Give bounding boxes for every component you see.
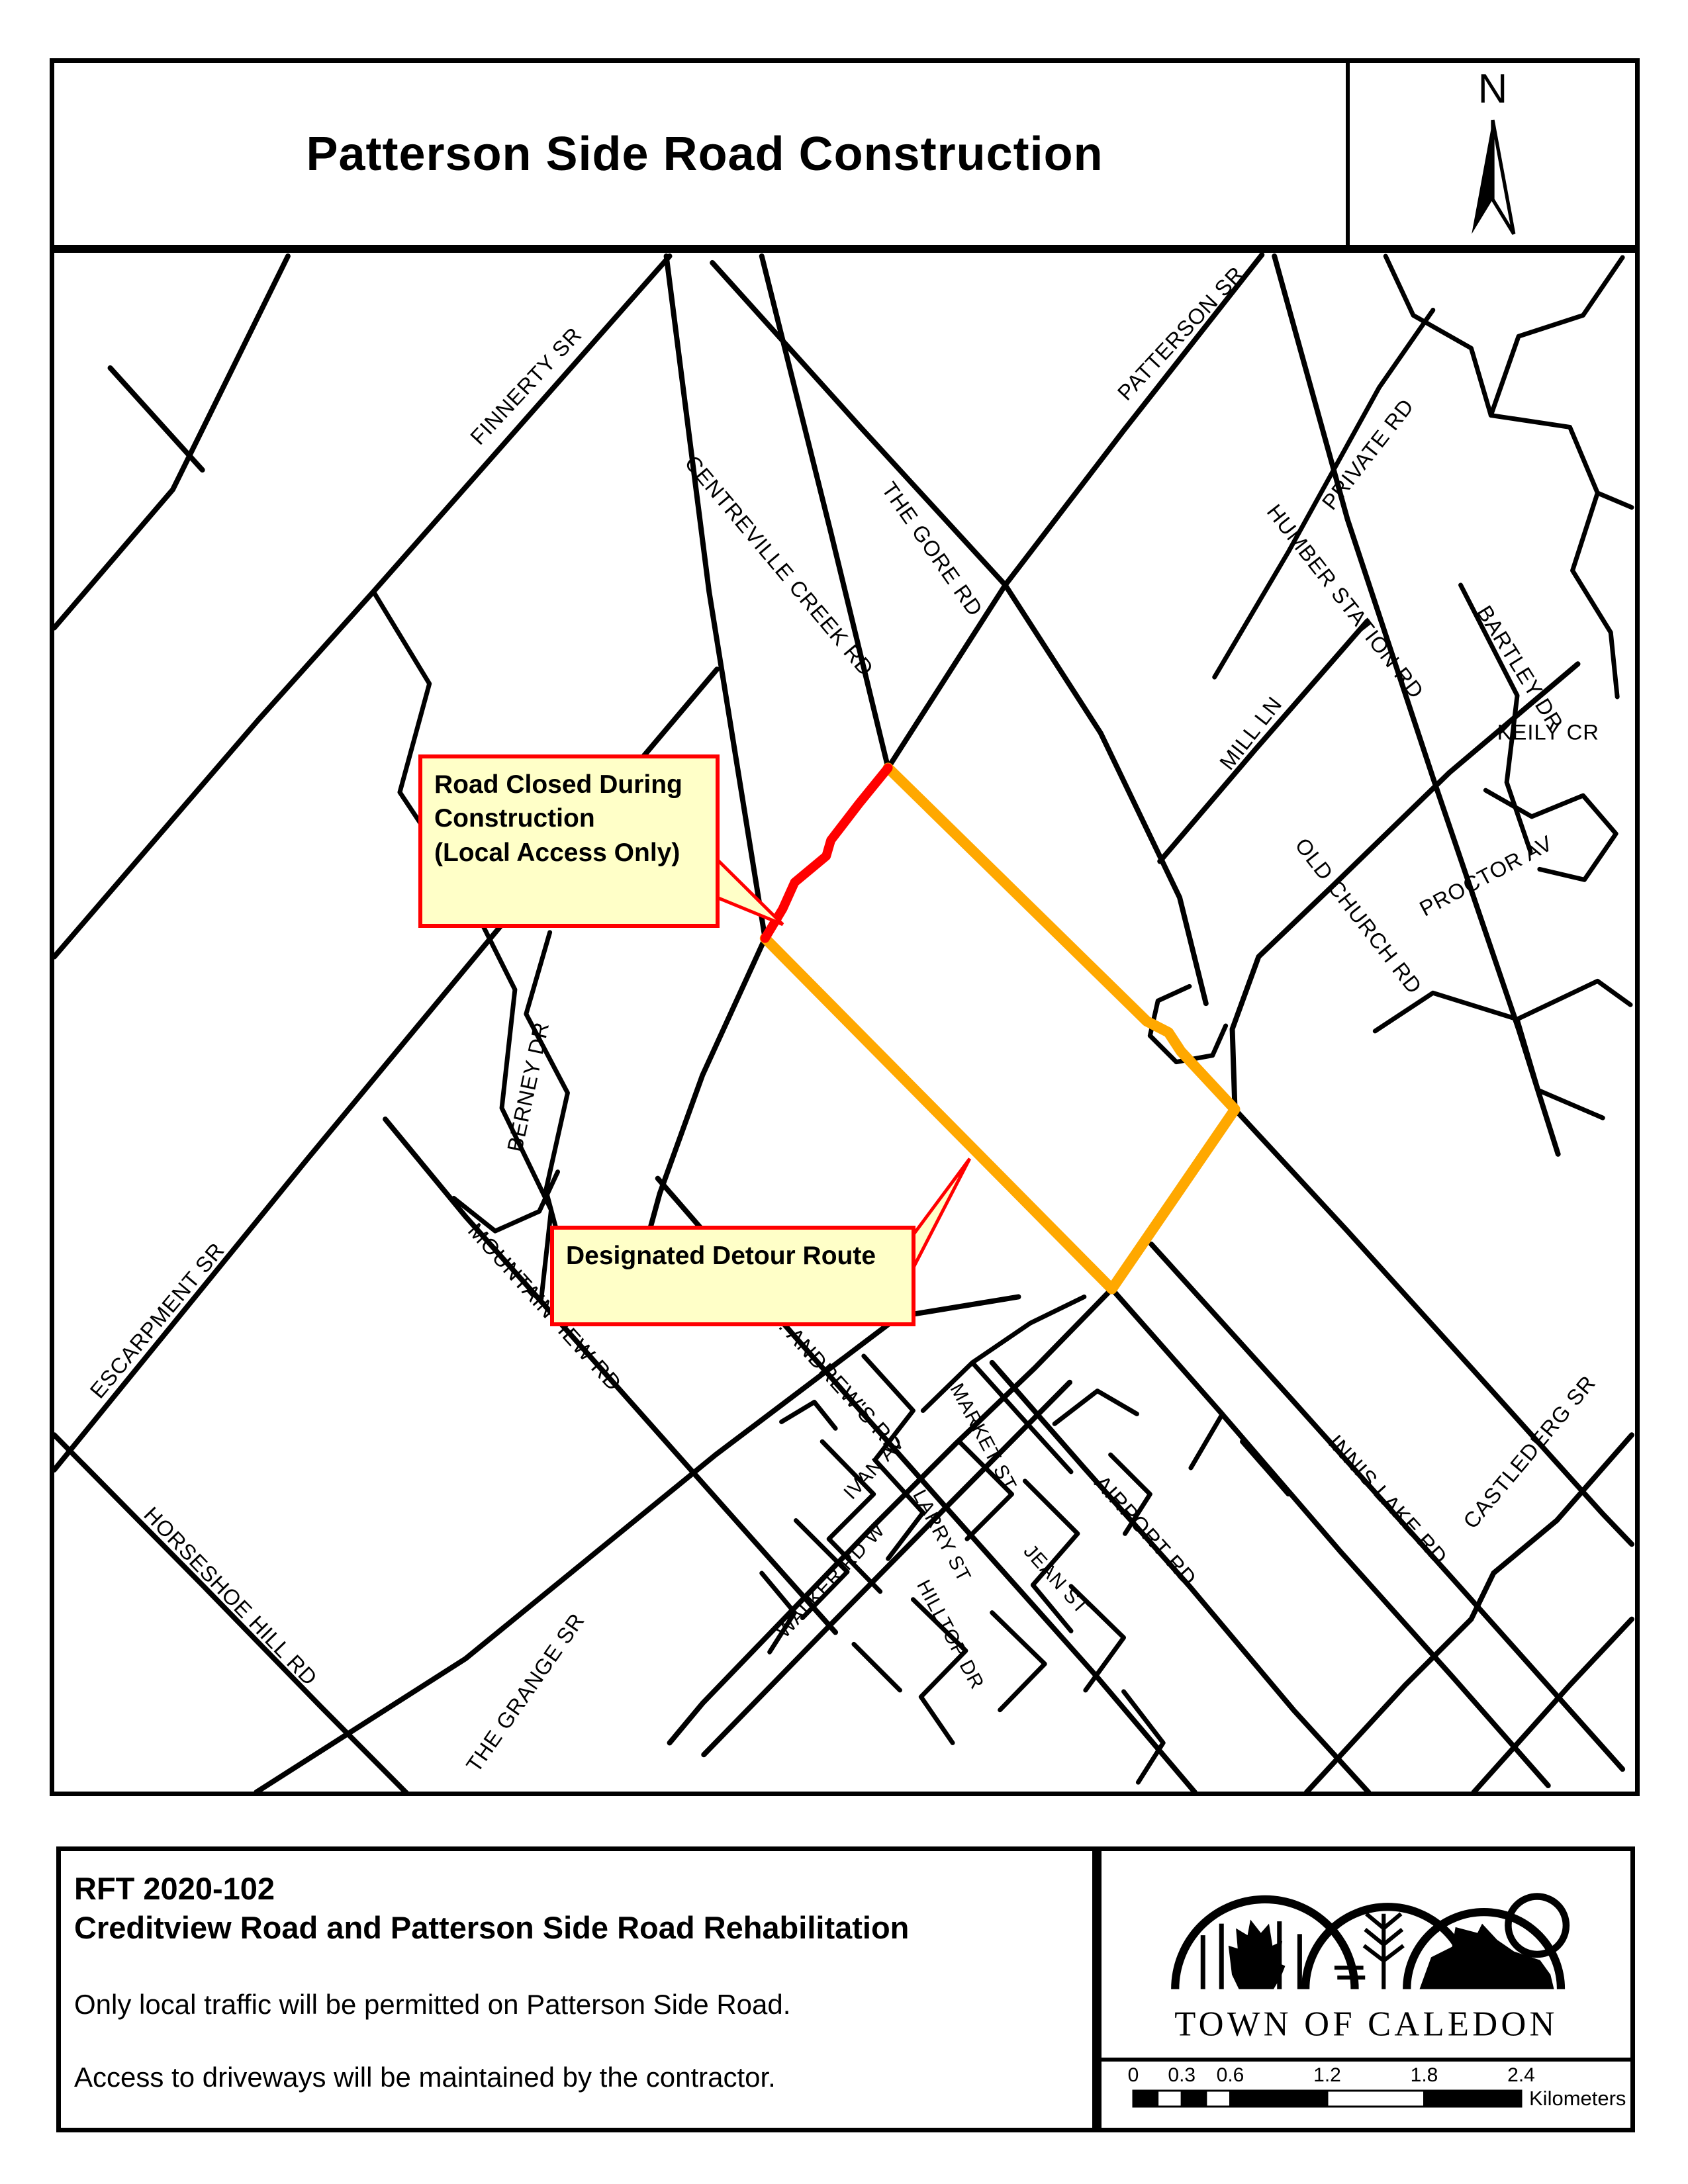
scale-bar-segment xyxy=(1231,2091,1328,2107)
footer-logo-box: TOWN OF CALEDON 00.30.61.21.82.4Kilomete… xyxy=(1097,1846,1635,2132)
page: { "title": "Patterson Side Road Construc… xyxy=(0,0,1688,2184)
north-label: N xyxy=(1477,66,1507,112)
road-closed-callout-text-line: Construction xyxy=(434,801,704,835)
town-of-caledon-logo: TOWN OF CALEDON xyxy=(1102,1851,1630,2062)
scale-bar-segment xyxy=(1182,2091,1206,2107)
road-label-market-st: MARKET ST xyxy=(946,1380,1021,1495)
road-old-church-rd-town xyxy=(670,1289,1112,1743)
north-arrow-right-half xyxy=(1493,120,1514,234)
closed-road-highlight xyxy=(765,768,888,938)
scale-tick-label: 2.4 xyxy=(1507,2064,1535,2086)
map-area: FINNERTY SRCENTREVILLE CREEK RDTHE GORE … xyxy=(50,248,1640,1796)
road-label-proctor-av: PROCTOR AV xyxy=(1415,831,1556,921)
road-town-11 xyxy=(782,1402,836,1429)
road-town-9 xyxy=(992,1613,1045,1710)
road-closed-callout-leader xyxy=(712,855,782,925)
road-the-grange-sr xyxy=(256,1297,1018,1792)
road-the-gore-rd-north xyxy=(762,256,888,768)
road-town-13 xyxy=(854,1644,900,1690)
road-corner-br-road xyxy=(1474,1619,1632,1792)
road-wiggle-tr-3 xyxy=(1573,493,1618,697)
footer-note-2: Access to driveways will be maintained b… xyxy=(74,2062,1079,2093)
road-label-escarpment-sr: ESCARPMENT SR xyxy=(85,1238,229,1403)
north-arrow-cell: N xyxy=(1346,63,1635,245)
header-bar: Patterson Side Road Construction N xyxy=(50,58,1640,250)
scale-tick-label: 0.6 xyxy=(1217,2064,1244,2086)
road-town-17 xyxy=(1242,1441,1288,1494)
scale-bar-segment xyxy=(1158,2091,1182,2107)
road-label-humber-station-rd: HUMBER STATION RD xyxy=(1262,500,1429,704)
north-arrow-icon: N xyxy=(1443,66,1542,242)
road-label-patterson-sr: PATTERSON SR xyxy=(1113,261,1249,405)
road-label-innis-lake-rd: INNIS LAKE RD xyxy=(1323,1430,1452,1569)
detour-callout: Designated Detour Route xyxy=(550,1226,915,1326)
scale-tick-label: 0 xyxy=(1128,2064,1139,2086)
project-title: Creditview Road and Patterson Side Road … xyxy=(74,1909,1079,1948)
scale-tick-label: 0.3 xyxy=(1168,2064,1196,2086)
road-town-15 xyxy=(1124,1692,1164,1782)
road-label-jean-st: JEAN ST xyxy=(1019,1540,1093,1618)
road-mill-ln xyxy=(1160,621,1367,862)
road-label-the-grange-sr: THE GRANGE SR xyxy=(461,1608,589,1776)
scale-bar-segment xyxy=(1133,2091,1158,2107)
road-label-centreville-creek-rd: CENTREVILLE CREEK RD xyxy=(680,451,878,681)
scale-tick-label: 1.8 xyxy=(1411,2064,1438,2086)
road-label-finnerty-sr: FINNERTY SR xyxy=(465,322,586,449)
scale-tick-label: 1.2 xyxy=(1313,2064,1341,2086)
road-corner-tl-road xyxy=(54,256,288,628)
road-closed-callout: Road Closed DuringConstruction(Local Acc… xyxy=(418,754,720,928)
detour-route-highlight xyxy=(765,768,1235,1289)
road-wiggle-tr-2 xyxy=(1491,257,1622,416)
road-town-16 xyxy=(1176,1363,1223,1468)
footer-info-box: RFT 2020-102 Creditview Road and Patters… xyxy=(56,1846,1097,2132)
road-town-18 xyxy=(1055,1391,1137,1424)
road-label-keily-cr: KEILY CR xyxy=(1497,720,1599,745)
footer-note-1: Only local traffic will be permitted on … xyxy=(74,1989,1079,2021)
detour-callout-leader xyxy=(909,1159,969,1276)
road-castlederg-sr xyxy=(1307,1435,1632,1792)
road-proctor-wiggle-2 xyxy=(1517,1019,1603,1118)
detour-callout-text-line: Designated Detour Route xyxy=(566,1239,900,1273)
road-wiggle-tr-1 xyxy=(1385,256,1632,508)
road-label-mill-ln: MILL LN xyxy=(1215,692,1287,774)
scale-bar-svg: 00.30.61.21.82.4Kilometers xyxy=(1102,2056,1640,2128)
road-map-svg: FINNERTY SRCENTREVILLE CREEK RDTHE GORE … xyxy=(54,253,1635,1792)
scale-bar-segment xyxy=(1425,2091,1522,2107)
north-arrow-left-half xyxy=(1472,120,1493,234)
page-title: Patterson Side Road Construction xyxy=(54,63,1355,245)
scale-unit-label: Kilometers xyxy=(1529,2087,1626,2110)
caledon-logo-icon: TOWN OF CALEDON xyxy=(1135,1858,1598,2050)
scale-bar-segment xyxy=(1206,2091,1231,2107)
road-creek-road-west xyxy=(373,592,551,1299)
scale-bar: 00.30.61.21.82.4Kilometers xyxy=(1102,2056,1630,2128)
rft-number: RFT 2020-102 xyxy=(74,1870,1079,1909)
road-the-gore-rd-south xyxy=(1235,1109,1632,1544)
road-closed-callout-text-line: Road Closed During xyxy=(434,768,704,801)
scale-bar-segment xyxy=(1327,2091,1425,2107)
road-label-castlederg-sr: CASTLEDERG SR xyxy=(1458,1371,1601,1533)
road-label-horseshoe-hill-rd: HORSESHOE HILL RD xyxy=(139,1502,322,1690)
road-label-hilltop-dr: HILLTOP DR xyxy=(912,1576,988,1693)
logo-wordmark: TOWN OF CALEDON xyxy=(1174,2005,1558,2044)
road-corner-tl-stub xyxy=(111,368,203,470)
road-closed-callout-text-line: (Local Access Only) xyxy=(434,836,704,870)
